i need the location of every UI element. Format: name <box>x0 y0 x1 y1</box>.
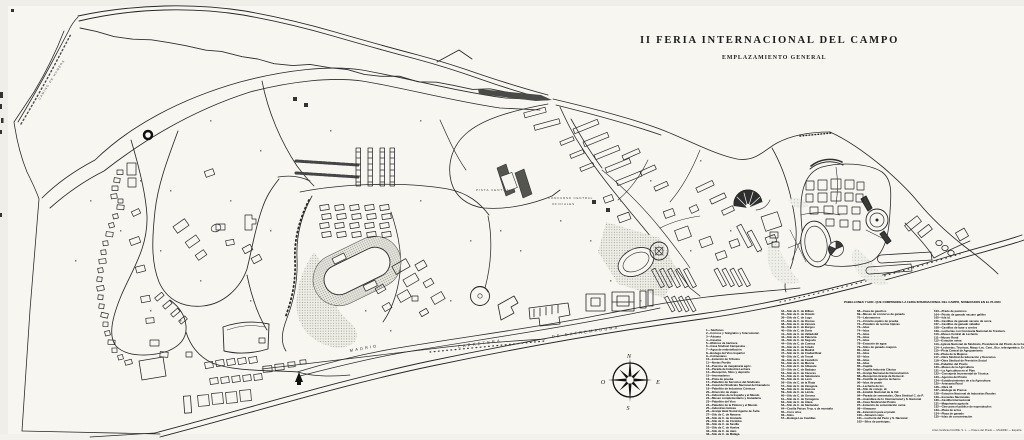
svg-text:E: E <box>655 380 660 386</box>
svg-text:CAMINO DE HUMERA: CAMINO DE HUMERA <box>37 59 65 101</box>
svg-text:PABELLONES Y EDIF. QUE COMPREN: PABELLONES Y EDIF. QUE COMPRENDE LA FERI… <box>844 300 1001 304</box>
svg-text:33—Silo de C. de Málaga: 33—Silo de C. de Málaga <box>706 432 740 436</box>
svg-text:O: O <box>601 380 606 386</box>
svg-text:67—Bodega Las Castillas: 67—Bodega Las Castillas <box>781 416 816 420</box>
svg-text:102—Silos de participac.: 102—Silos de participac. <box>857 420 891 424</box>
svg-text:MADRID: MADRID <box>349 343 378 353</box>
svg-text:N: N <box>626 354 632 360</box>
svg-text:S: S <box>627 406 630 412</box>
svg-text:II FERIA INTERNACIONAL DEL: II FERIA INTERNACIONAL DEL CAMPO <box>640 35 899 46</box>
svg-text:135—Islas de concentración: 135—Islas de concentración <box>934 415 973 419</box>
svg-text:PISTA CENTRAL: PISTA CENTRAL <box>476 188 512 192</box>
svg-text:OFICIALES: OFICIALES <box>552 202 575 206</box>
svg-text:Artes Gráficas FAURE, S. L. —: Artes Gráficas FAURE, S. L. — Paseo del … <box>932 428 1022 432</box>
svg-text:CONCURSO CENTRAL: CONCURSO CENTRAL <box>548 196 593 200</box>
svg-text:EMPLAZAMIENTO GENERAL: EMPLAZAMIENTO GENERAL <box>722 55 826 61</box>
